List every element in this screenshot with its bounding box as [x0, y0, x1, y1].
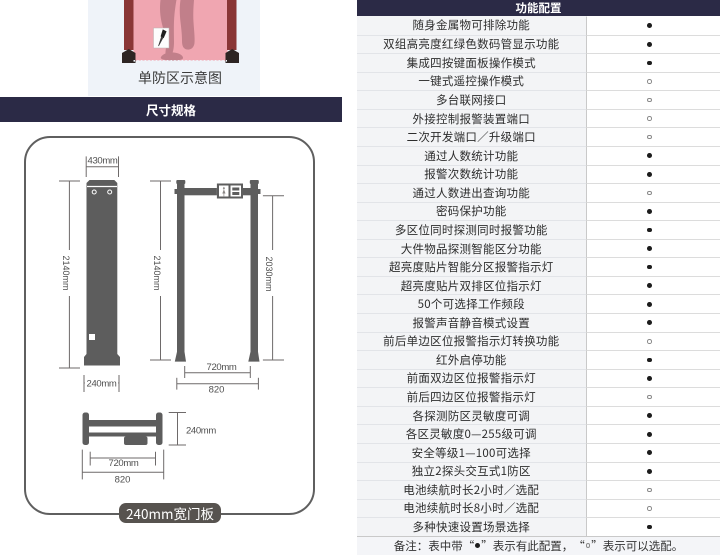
svg-text:720mm: 720mm — [207, 362, 237, 373]
svg-text:2140mm: 2140mm — [61, 255, 71, 290]
svg-text:240mm: 240mm — [87, 379, 117, 390]
svg-text:430mm: 430mm — [88, 156, 118, 167]
svg-text:820: 820 — [209, 384, 225, 395]
svg-text:2030mm: 2030mm — [264, 256, 274, 291]
svg-text:820: 820 — [115, 475, 131, 486]
svg-text:720mm: 720mm — [109, 458, 139, 469]
svg-text:240mm: 240mm — [186, 426, 216, 437]
svg-text:2140mm: 2140mm — [152, 255, 162, 290]
